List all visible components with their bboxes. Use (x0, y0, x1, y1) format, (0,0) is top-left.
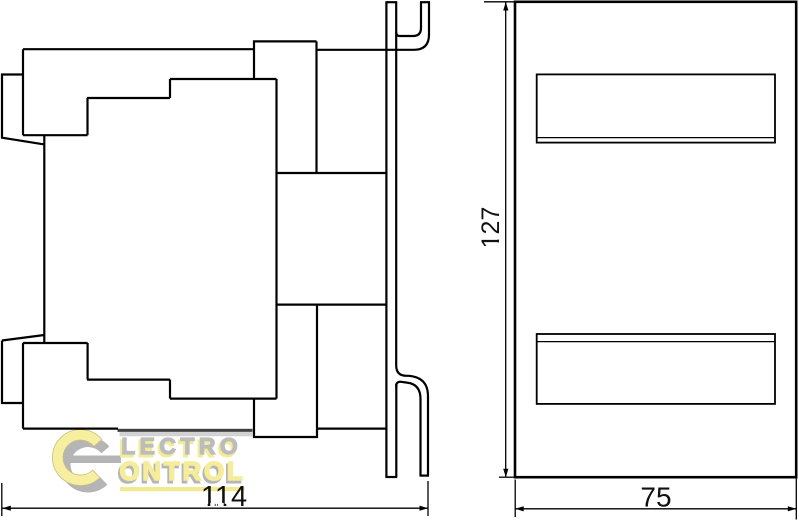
svg-text:114: 114 (201, 481, 247, 513)
svg-text:75: 75 (640, 481, 671, 512)
svg-text:127: 127 (477, 207, 505, 249)
